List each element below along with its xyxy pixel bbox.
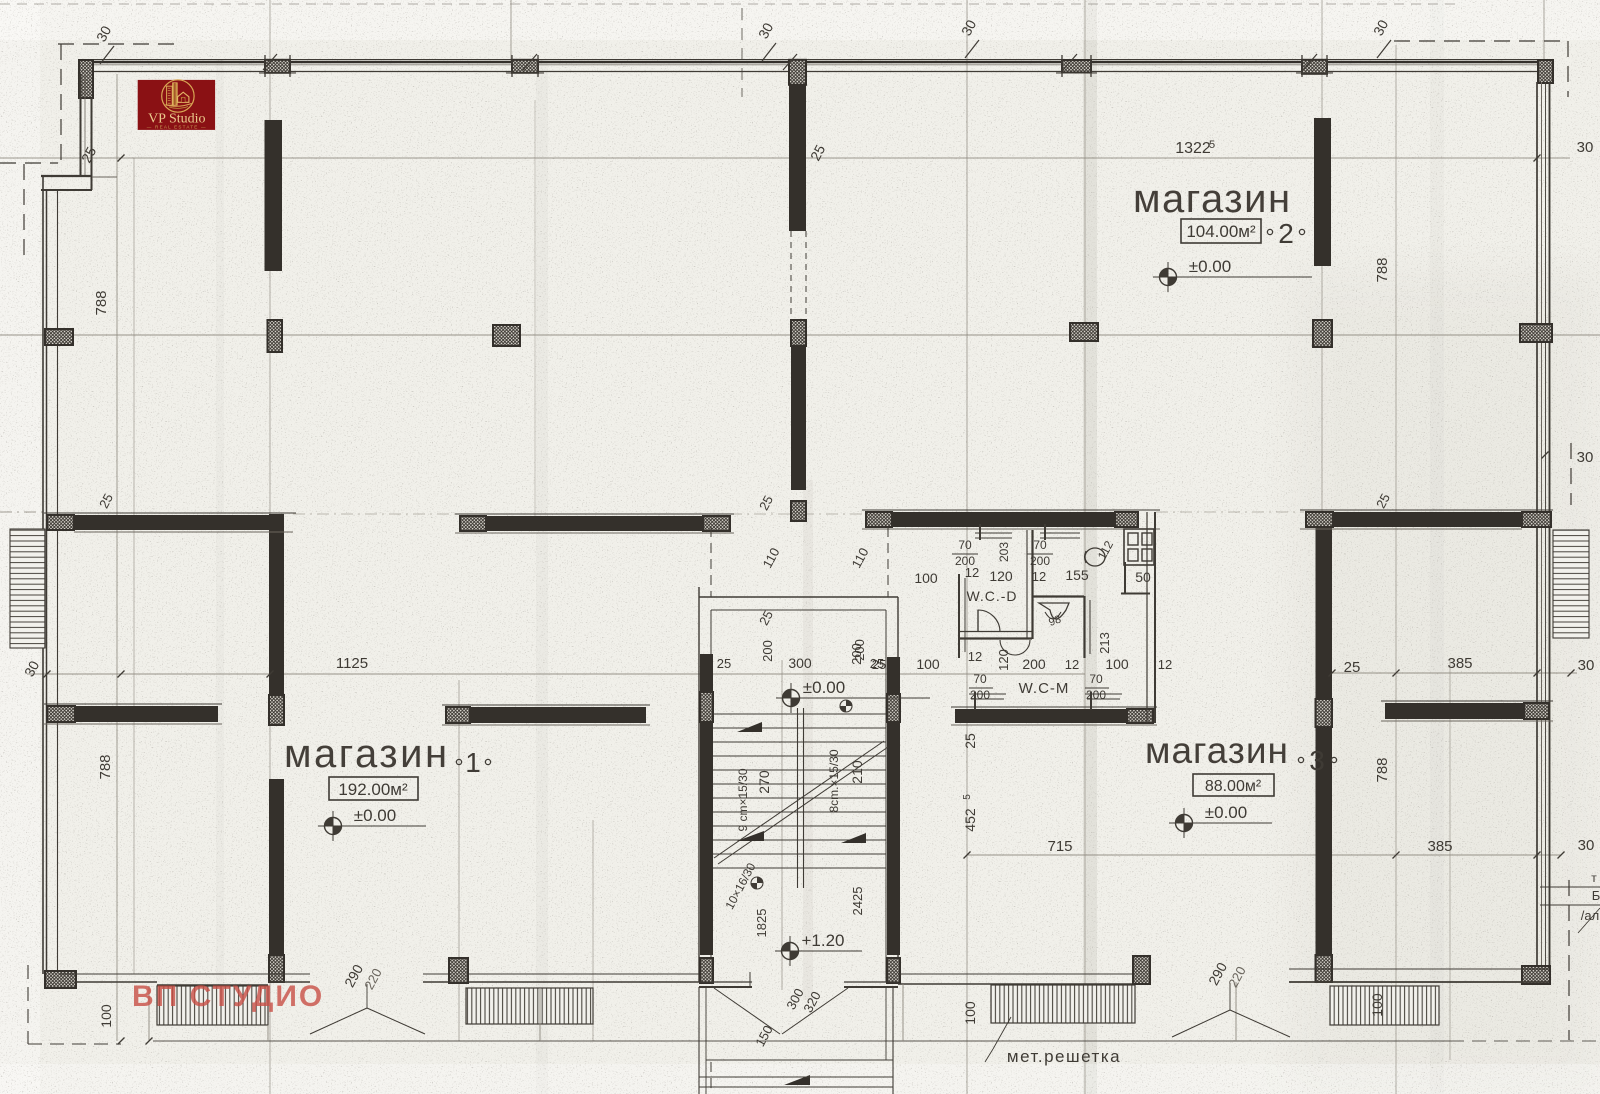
svg-text:200: 200	[1022, 656, 1046, 672]
svg-text:30: 30	[1578, 837, 1595, 854]
svg-text:270: 270	[756, 770, 772, 794]
svg-text:104.00м²: 104.00м²	[1186, 222, 1256, 241]
svg-text:210: 210	[849, 760, 865, 784]
svg-text:мет.решетка: мет.решетка	[1007, 1047, 1121, 1066]
svg-text:1322: 1322	[1175, 140, 1211, 157]
svg-text:70: 70	[958, 538, 972, 552]
svg-text:/ал: /ал	[1581, 908, 1599, 923]
svg-text:12: 12	[1032, 569, 1046, 584]
svg-text:5: 5	[1209, 139, 1215, 151]
svg-text:9 cm×15/30: 9 cm×15/30	[736, 768, 750, 831]
svg-text:200: 200	[1086, 688, 1106, 702]
svg-text:1125: 1125	[336, 655, 368, 672]
svg-text:192.00м²: 192.00м²	[338, 780, 408, 799]
svg-text:100: 100	[962, 1001, 978, 1025]
svg-text:±0.00: ±0.00	[1189, 257, 1231, 276]
svg-text:1825: 1825	[754, 909, 769, 938]
svg-text:788: 788	[1374, 257, 1391, 282]
svg-text:88.00м²: 88.00м²	[1205, 778, 1262, 795]
svg-text:100: 100	[914, 570, 938, 586]
svg-text:100: 100	[1369, 993, 1385, 1017]
svg-text:70: 70	[973, 672, 987, 686]
svg-text:магазин: магазин	[284, 732, 450, 776]
svg-text:155: 155	[1065, 567, 1089, 583]
svg-text:385: 385	[1427, 838, 1452, 855]
svg-text:788: 788	[1374, 757, 1391, 782]
svg-text:1: 1	[465, 747, 481, 778]
svg-text:452: 452	[962, 808, 978, 832]
svg-text:3: 3	[1309, 745, 1325, 776]
svg-text:203: 203	[997, 542, 1011, 562]
svg-text:70: 70	[1033, 538, 1047, 552]
svg-text:8cm.×15/30: 8cm.×15/30	[827, 749, 841, 812]
svg-text:300: 300	[788, 655, 812, 671]
svg-text:200: 200	[970, 688, 990, 702]
svg-text:25: 25	[962, 733, 978, 749]
svg-text:25: 25	[717, 656, 731, 671]
svg-text:30: 30	[1577, 139, 1594, 156]
svg-text:200: 200	[849, 643, 864, 665]
svg-text:788: 788	[93, 290, 110, 315]
svg-text:120: 120	[989, 568, 1013, 584]
svg-text:Б: Б	[1592, 888, 1600, 903]
svg-text:магазин: магазин	[1133, 177, 1292, 221]
svg-text:200: 200	[955, 554, 975, 568]
svg-text:магазин: магазин	[1145, 730, 1289, 771]
svg-text:+1.20: +1.20	[801, 931, 844, 950]
svg-text:±0.00: ±0.00	[1205, 803, 1247, 822]
svg-text:2: 2	[1278, 218, 1294, 249]
svg-text:30: 30	[1577, 449, 1594, 466]
svg-text:213: 213	[1097, 632, 1112, 654]
svg-text:5: 5	[962, 794, 973, 800]
svg-text:200: 200	[760, 640, 775, 662]
svg-text:12: 12	[1065, 657, 1079, 672]
svg-text:120: 120	[996, 649, 1011, 671]
svg-text:100: 100	[916, 656, 940, 672]
svg-text:ВП СТУДИО: ВП СТУДИО	[132, 980, 324, 1013]
svg-text:±0.00: ±0.00	[354, 806, 396, 825]
svg-text:385: 385	[1447, 655, 1472, 672]
svg-text:50: 50	[1135, 569, 1151, 585]
svg-text:т: т	[1591, 871, 1597, 885]
svg-text:25: 25	[1344, 659, 1361, 676]
svg-text:100: 100	[98, 1004, 114, 1028]
svg-text:W.C-M: W.C-M	[1019, 680, 1070, 697]
svg-text:715: 715	[1047, 838, 1072, 855]
svg-text:200: 200	[1030, 554, 1050, 568]
svg-text:100: 100	[1105, 656, 1129, 672]
svg-text:30: 30	[1578, 657, 1595, 674]
svg-text:12: 12	[968, 649, 982, 664]
svg-text:±0.00: ±0.00	[803, 678, 845, 697]
svg-text:25: 25	[872, 657, 886, 672]
svg-text:2425: 2425	[850, 887, 865, 916]
svg-text:— REAL ESTATE —: — REAL ESTATE —	[147, 124, 207, 129]
svg-text:12: 12	[1158, 657, 1172, 672]
svg-text:W.C.-D: W.C.-D	[966, 588, 1017, 604]
svg-text:70: 70	[1089, 672, 1103, 686]
svg-text:788: 788	[97, 754, 114, 779]
